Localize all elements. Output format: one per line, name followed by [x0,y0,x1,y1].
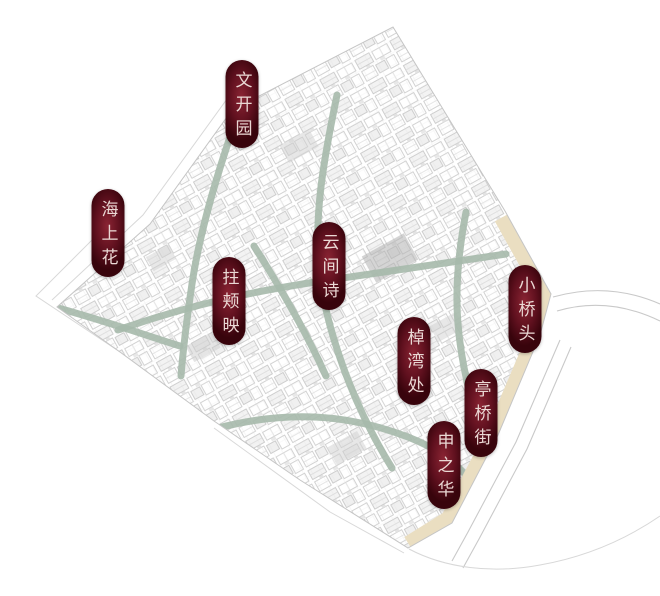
zone-labels: 文开园海上花拄颊映云间诗小桥头棹湾处亭桥街申之华 [0,0,660,596]
site-plan: 文开园海上花拄颊映云间诗小桥头棹湾处亭桥街申之华 [0,0,660,596]
zone-label-5: 小桥头 [509,265,542,353]
zone-label-3: 拄颊映 [213,257,246,345]
zone-label-text: 海上花 [100,194,117,272]
zone-label-2: 海上花 [92,189,125,277]
zone-label-text: 棹湾处 [406,322,423,400]
zone-label-6: 棹湾处 [398,317,431,405]
zone-label-text: 文开园 [234,65,251,143]
zone-label-text: 亭桥街 [473,374,490,452]
zone-label-7: 亭桥街 [465,369,498,457]
zone-label-text: 小桥头 [517,270,534,348]
zone-label-text: 云间诗 [321,227,338,305]
zone-label-4: 云间诗 [313,222,346,310]
zone-label-text: 拄颊映 [221,262,238,340]
zone-label-1: 文开园 [226,60,259,148]
zone-label-text: 申之华 [436,426,453,504]
zone-label-8: 申之华 [428,421,461,509]
